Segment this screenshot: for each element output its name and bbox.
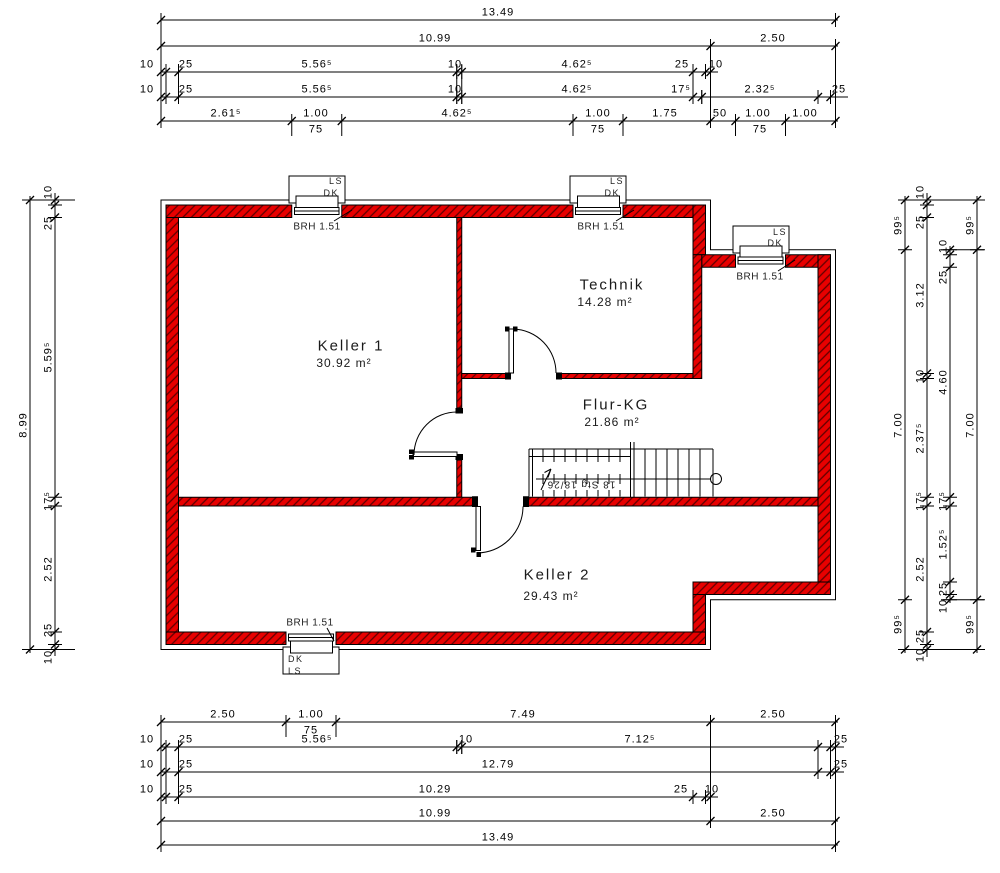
dim-label: 25 xyxy=(834,735,848,746)
door-arc-keller2 xyxy=(477,507,524,554)
dim-label: 13.49 xyxy=(482,833,515,844)
dim-label: 10.99 xyxy=(419,34,452,45)
dim-label: 10.29 xyxy=(419,785,452,796)
window-sill-height-note-3: BRH 1.51 xyxy=(736,271,783,282)
dim-label: 7.00 xyxy=(966,412,977,437)
wall-keller1-divider-a xyxy=(457,218,462,409)
window-sill-height-note-2: BRH 1.51 xyxy=(577,222,624,233)
dim-label: 10 xyxy=(448,60,462,71)
door-leaf-keller1 xyxy=(413,452,457,457)
door-leaf-technik xyxy=(509,329,514,373)
dim-label: 2.50 xyxy=(760,809,785,820)
dim-label: 25 xyxy=(179,760,193,771)
dim-label: 17⁵ xyxy=(939,491,950,511)
stair-walkline-start xyxy=(711,474,722,485)
dim-label: 17⁵ xyxy=(671,85,691,96)
dim-label: 2.52 xyxy=(44,556,55,581)
dim-label: 10 xyxy=(705,785,719,796)
dim-label: 3.12 xyxy=(916,282,927,307)
dim-label: 10 xyxy=(459,735,473,746)
walls xyxy=(166,205,831,645)
dim-label: 10 xyxy=(709,60,723,71)
dim-label: 25 xyxy=(179,735,193,746)
room-label-technik: Technik xyxy=(580,276,645,293)
dim-label: 17⁵ xyxy=(44,491,55,511)
wall-top-2 xyxy=(342,205,573,218)
wall-technik-right xyxy=(693,255,702,379)
dim-label: 99⁵ xyxy=(966,215,977,235)
floor-plan-canvas: Keller 1 30.92 m² Technik 14.28 m² Flur-… xyxy=(0,0,1000,873)
dim-label: 25 xyxy=(834,760,848,771)
dim-label: 1.52⁵ xyxy=(939,529,950,560)
dim-label: 25 xyxy=(674,785,688,796)
wall-recess-top-1 xyxy=(702,255,736,268)
dim-label: 25 xyxy=(44,216,55,230)
dim-label: 10 xyxy=(916,369,927,383)
wall-right-upper xyxy=(693,205,706,255)
dim-label: 25 xyxy=(939,270,950,284)
wall-bottom-2 xyxy=(336,632,706,645)
wall-mid-a xyxy=(179,497,473,506)
dim-label: 99⁵ xyxy=(894,215,905,235)
room-label-keller-2: Keller 2 xyxy=(524,567,591,584)
dim-label: 25 xyxy=(939,582,950,596)
dim-label: 10 xyxy=(44,185,55,199)
dim-label: 2.37⁵ xyxy=(916,423,927,454)
dim-label: 10 xyxy=(939,239,950,253)
dim-label: 25 xyxy=(675,60,689,71)
dim-label: 1.75 xyxy=(652,109,677,120)
dim-label: 17⁵ xyxy=(916,491,927,511)
dim-label: 7.49 xyxy=(510,710,535,721)
dim-label: 50 xyxy=(713,109,727,120)
window-sill-4 xyxy=(291,640,333,653)
wall-bottom-1 xyxy=(166,632,286,645)
room-area-keller-1: 30.92 m² xyxy=(316,356,371,370)
dim-label: 75 xyxy=(753,125,767,136)
lightwell-label-dk-2: DK xyxy=(604,188,620,198)
dim-label: 2.50 xyxy=(760,710,785,721)
dim-label: 10 xyxy=(140,785,154,796)
dim-label: 2.50 xyxy=(210,710,235,721)
dim-label: 7.00 xyxy=(894,412,905,437)
dim-label: 10 xyxy=(916,185,927,199)
wall-technik-flur-b xyxy=(562,374,694,379)
dim-label: 10 xyxy=(448,85,462,96)
dim-label: 99⁵ xyxy=(894,614,905,634)
room-area-flur-kg: 21.86 m² xyxy=(584,415,639,429)
dim-label: 1.00 xyxy=(303,109,328,120)
dim-label: 2.32⁵ xyxy=(745,85,776,96)
wall-technik-flur-a xyxy=(462,374,506,379)
door-leaf-keller2 xyxy=(476,507,481,551)
lightwell-label-dk-3: DK xyxy=(767,238,783,248)
dim-label: 4.60 xyxy=(939,369,950,394)
dim-label: 10 xyxy=(140,760,154,771)
dim-label: 4.62⁵ xyxy=(442,109,473,120)
dim-label: 75 xyxy=(309,125,323,136)
stair-cut-line xyxy=(631,442,635,497)
dim-label: 13.49 xyxy=(482,8,515,19)
stair-label: 18 Stg 18/26 xyxy=(547,479,616,490)
lightwell-label-ls-4: LS xyxy=(288,666,302,676)
dim-label: 10 xyxy=(939,599,950,613)
doors xyxy=(410,327,557,557)
dim-label: 12.79 xyxy=(482,760,515,771)
dim-label: 8.99 xyxy=(19,412,30,437)
dim-label: 2.61⁵ xyxy=(211,109,242,120)
wall-left xyxy=(166,205,179,645)
dim-label: 25 xyxy=(179,60,193,71)
dim-label: 25 xyxy=(179,85,193,96)
dim-label: 25 xyxy=(44,623,55,637)
door-arc-technik xyxy=(514,329,557,373)
dim-label: 5.56⁵ xyxy=(302,60,333,71)
window-sill-height-note-4: BRH 1.51 xyxy=(286,618,333,629)
wall-top-1 xyxy=(166,205,292,218)
dim-label: 10 xyxy=(44,650,55,664)
dim-label: 5.56⁵ xyxy=(302,735,333,746)
dim-label: 10 xyxy=(916,648,927,662)
wall-recess-right xyxy=(818,255,831,595)
dim-label: 25 xyxy=(916,215,927,229)
dim-label: 75 xyxy=(591,125,605,136)
wall-mid-b xyxy=(529,497,819,506)
dim-label: 5.59⁵ xyxy=(44,342,55,373)
lightwell-label-ls-3: LS xyxy=(773,227,787,237)
dim-label: 1.00 xyxy=(792,109,817,120)
dim-label: 25 xyxy=(179,785,193,796)
lightwell-label-dk-1: DK xyxy=(323,188,339,198)
dim-label: 25 xyxy=(832,85,846,96)
dim-label: 25 xyxy=(916,629,927,643)
dim-label: 4.62⁵ xyxy=(562,60,593,71)
room-area-keller-2: 29.43 m² xyxy=(523,589,578,603)
dim-label: 10 xyxy=(140,85,154,96)
lightwell-label-dk-4: DK xyxy=(288,654,304,664)
window-sill-height-note-1: BRH 1.51 xyxy=(293,221,340,232)
room-label-flur-kg: Flur-KG xyxy=(583,397,650,414)
dim-label: 10 xyxy=(140,735,154,746)
dim-label: 5.56⁵ xyxy=(302,85,333,96)
door-arc-keller1 xyxy=(414,412,457,455)
dim-label: 4.62⁵ xyxy=(562,85,593,96)
dim-label: 2.50 xyxy=(760,34,785,45)
wall-keller1-divider-b xyxy=(457,460,462,497)
lightwell-label-ls-1: LS xyxy=(329,176,343,186)
dim-label: 7.12⁵ xyxy=(625,735,656,746)
lightwell-label-ls-2: LS xyxy=(610,176,624,186)
dim-label: 10 xyxy=(140,60,154,71)
dim-label: 2.52 xyxy=(916,556,927,581)
dim-label: 1.00 xyxy=(585,109,610,120)
dim-label: 1.00 xyxy=(298,710,323,721)
dim-label: 1.00 xyxy=(745,109,770,120)
dim-label: 10.99 xyxy=(419,809,452,820)
wall-recess-bottom xyxy=(693,582,831,595)
dim-label: 99⁵ xyxy=(966,614,977,634)
room-label-keller-1: Keller 1 xyxy=(318,337,385,354)
room-area-technik: 14.28 m² xyxy=(577,295,632,309)
